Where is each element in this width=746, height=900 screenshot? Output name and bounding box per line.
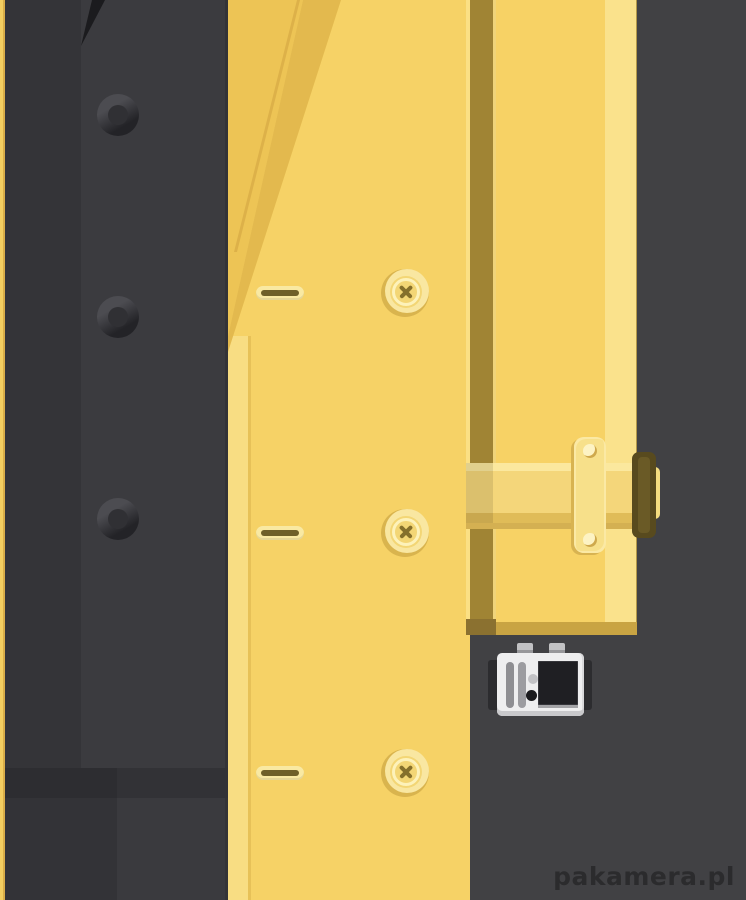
rivet-icon (583, 533, 597, 547)
suit-button-icon (97, 296, 139, 338)
coat-side-seam (466, 0, 496, 635)
suit-hem-right (117, 768, 228, 798)
device-button-icon (526, 690, 537, 701)
belt-strap (466, 463, 654, 523)
device-screen-shadow (538, 705, 578, 708)
suit-button-icon (97, 498, 139, 540)
belt-buckle (632, 452, 656, 538)
device-led-icon (528, 674, 538, 684)
buttonhole-icon (256, 286, 304, 300)
suit-left-panel (5, 0, 81, 768)
illustration-canvas: pakamera.pl (0, 0, 746, 900)
coat-button-icon (381, 269, 429, 317)
trouser-right (117, 798, 228, 900)
belt-drop-shadow (466, 523, 637, 529)
coat-seam-hem-shadow (466, 619, 496, 635)
suit-lapel-notch (60, 0, 120, 50)
speaker-grille-icon (518, 662, 526, 708)
speaker-grille-icon (506, 662, 514, 708)
coat-front-edge-highlight (228, 336, 251, 900)
coat-button-icon (381, 749, 429, 797)
suit-button-icon (97, 94, 139, 136)
watermark-text: pakamera.pl (553, 862, 735, 891)
notch-shape (81, 0, 105, 46)
rivet-icon (583, 444, 597, 458)
coat-lapel (228, 0, 348, 360)
suit-hem-left (5, 768, 117, 798)
buttonhole-icon (256, 766, 304, 780)
trouser-left (5, 798, 117, 900)
buttonhole-icon (256, 526, 304, 540)
coat-left-edge-sliver (0, 0, 5, 900)
coat-button-icon (381, 509, 429, 557)
device-screen (538, 661, 578, 705)
